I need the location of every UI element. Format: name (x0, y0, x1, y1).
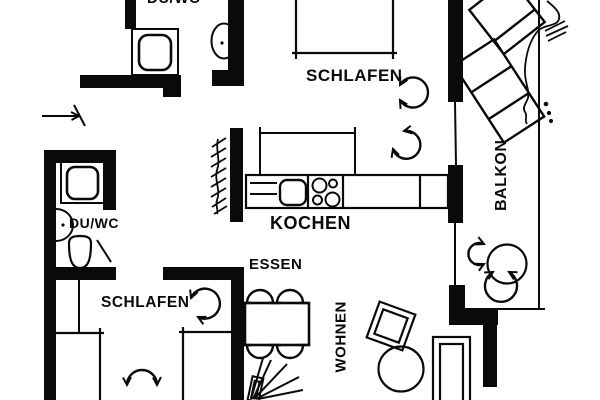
plant-icon (248, 358, 303, 400)
room-label-living: WOHNEN (334, 303, 349, 373)
room-label-bedroom-left: SCHLAFEN (101, 295, 189, 311)
plant-squiggle-icon (524, 1, 568, 124)
coffee-table-icon (379, 347, 424, 392)
shower-tray-icon (61, 162, 104, 203)
door-leaf (97, 240, 111, 262)
room-label-bedroom-top: SCHLAFEN (306, 67, 403, 84)
shower-tray-icon (132, 29, 178, 75)
kitchen-counter-icon (246, 175, 448, 208)
lounge-chair-icon (454, 39, 544, 142)
toilet-icon (69, 236, 91, 268)
floor-plan: DU/WC SCHLAFEN KOCHEN ESSEN DU/WC SCHLAF… (0, 0, 600, 400)
room-label-dining: ESSEN (249, 257, 302, 272)
dining-table-icon (245, 303, 309, 345)
lounge-chair-icon (469, 0, 544, 54)
room-label-bath-left: DU/WC (69, 216, 119, 230)
room-label-balcony: BALKON (494, 149, 510, 211)
sink-icon (250, 180, 306, 205)
sofa-icon (433, 337, 470, 400)
walls (44, 0, 498, 400)
entrance-arrow-icon (42, 105, 85, 126)
dining-chair-icon (243, 290, 307, 358)
bed-icon (52, 328, 104, 400)
room-label-bath-top: DU/WC (147, 0, 200, 6)
hatch-shaft-symbol (211, 138, 227, 214)
balcony-table-icon (488, 245, 527, 284)
room-label-kitchen: KOCHEN (270, 214, 351, 232)
bed-icon (292, 0, 397, 59)
floor-plan-drawing (0, 0, 600, 400)
bed-icon (179, 327, 231, 400)
kitchen-cabinet-icon (260, 127, 355, 175)
armchair-icon (367, 302, 416, 351)
stove-icon (313, 179, 340, 207)
